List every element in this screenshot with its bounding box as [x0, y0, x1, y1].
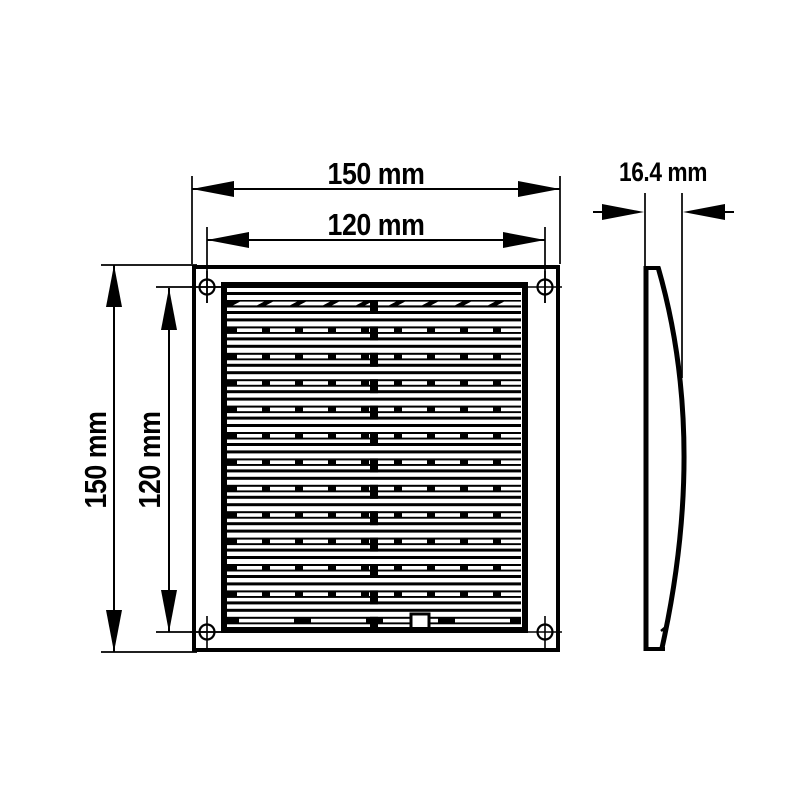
arrowhead-right	[503, 232, 545, 248]
technical-drawing: 150 mm 120 mm 150 mm 120 mm 16.4 mm	[0, 0, 800, 800]
louver-row	[227, 379, 526, 400]
louver-row	[227, 564, 526, 585]
dim-label-side-depth: 16.4 mm	[619, 157, 707, 187]
profile-front-curve	[658, 267, 684, 648]
front-view	[190, 267, 562, 650]
drawing-svg: 150 mm 120 mm 150 mm 120 mm 16.4 mm	[0, 0, 800, 800]
dim-front-height-inner: 120 mm	[132, 287, 226, 632]
arrowhead-up	[161, 288, 177, 330]
dim-side-depth: 16.4 mm	[593, 157, 734, 378]
louver-row	[227, 485, 526, 506]
louver-row	[227, 353, 526, 374]
louver-row	[227, 326, 526, 347]
dim-label-front-width-inner: 120 mm	[328, 207, 425, 242]
louver-row	[227, 458, 526, 479]
louver-row	[227, 590, 526, 611]
louver-row	[227, 432, 526, 453]
arrowhead-inward-left	[602, 204, 644, 220]
arrowhead-up	[106, 265, 122, 307]
dim-label-front-width-outer: 150 mm	[328, 156, 425, 191]
arrowhead-left	[207, 232, 249, 248]
louver-row	[227, 511, 526, 532]
dim-front-width-inner: 120 mm	[207, 207, 545, 303]
louver-row	[227, 538, 526, 559]
arrowhead-right	[518, 181, 560, 197]
arrowhead-down	[106, 610, 122, 652]
dim-label-front-height-inner: 120 mm	[132, 412, 167, 509]
louver-row	[227, 300, 528, 321]
dim-label-front-height-outer: 150 mm	[78, 412, 113, 509]
grille-louvers	[227, 292, 528, 631]
louver-line	[227, 292, 521, 295]
arrowhead-left	[192, 181, 234, 197]
arrowhead-down	[161, 590, 177, 632]
louver-row	[227, 406, 526, 427]
arrowhead-inward-right	[683, 204, 725, 220]
side-view	[644, 266, 684, 651]
